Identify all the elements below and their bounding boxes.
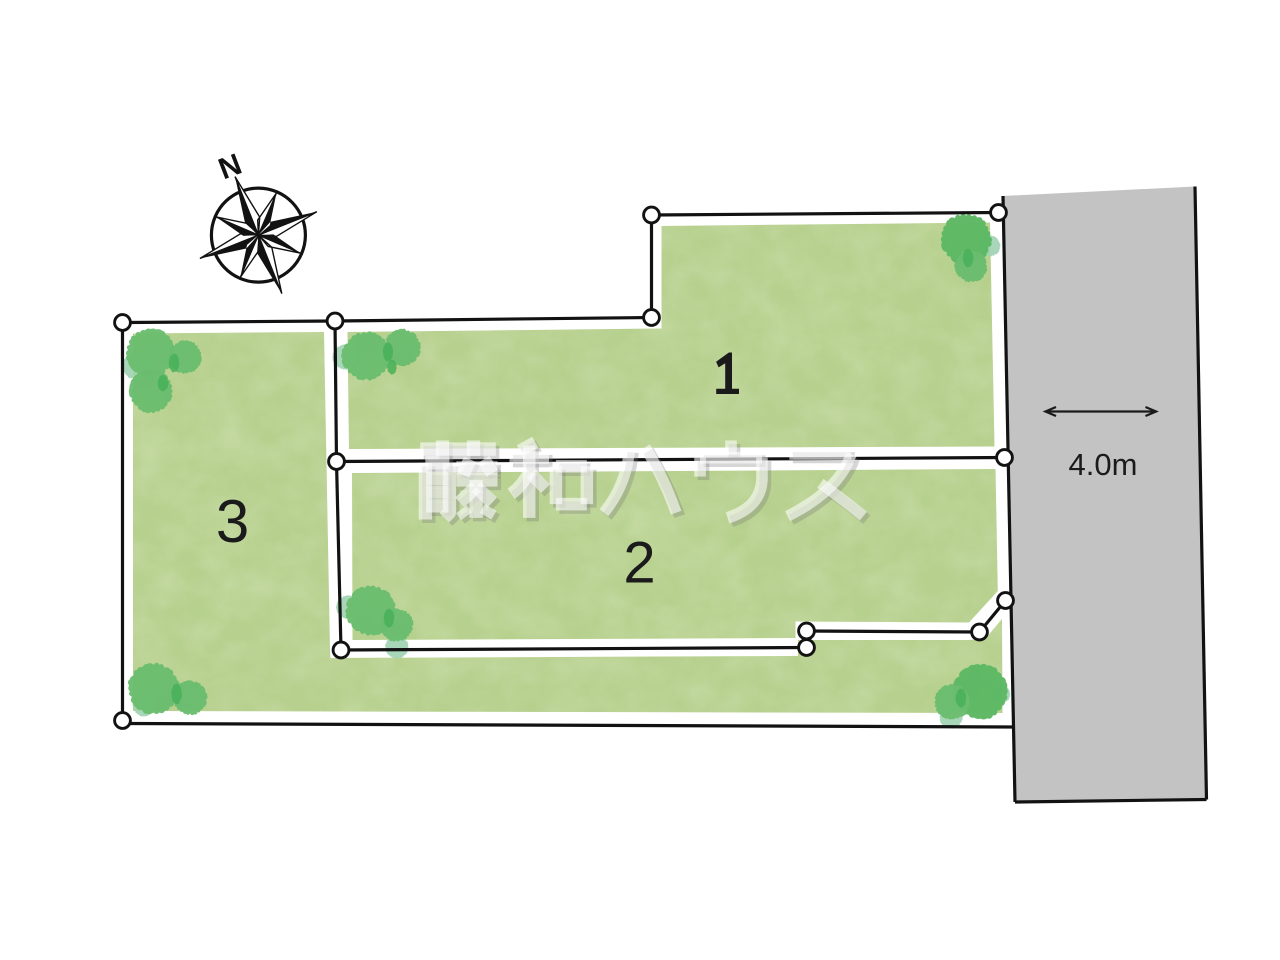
svg-text:4.0m: 4.0m (1069, 447, 1138, 482)
svg-text:2: 2 (623, 531, 655, 596)
svg-text:3: 3 (216, 488, 249, 555)
svg-text:N: N (214, 148, 246, 187)
